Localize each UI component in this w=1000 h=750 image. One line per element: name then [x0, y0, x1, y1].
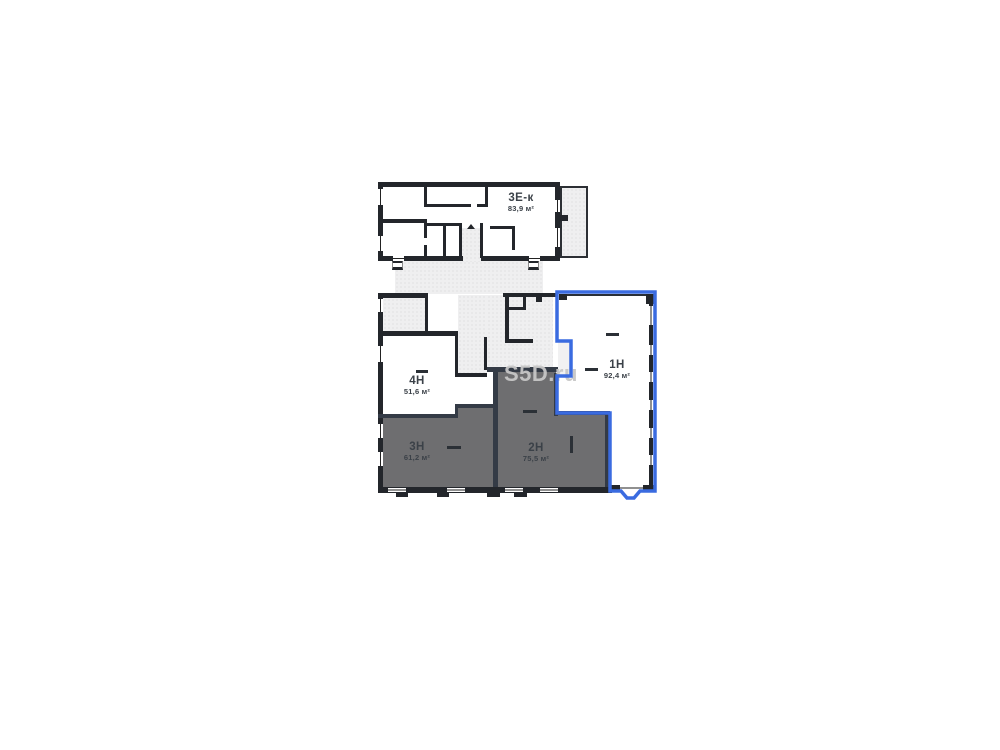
room-label-2n[interactable]: 2Н 75,5 м² — [523, 442, 549, 463]
room3n-step-wall — [455, 404, 497, 408]
block-wall-bottom — [378, 487, 612, 493]
room-area: 75,5 м² — [523, 454, 549, 463]
apt-partition — [382, 219, 427, 223]
room1n-wall-bottom — [610, 485, 620, 491]
hatch-middle-column — [458, 295, 487, 375]
window — [378, 452, 383, 466]
room1n-corner — [559, 294, 567, 300]
corridor-wall — [455, 331, 458, 377]
room-area: 61,2 м² — [404, 453, 430, 462]
apt-wall-right — [555, 182, 560, 261]
floor-plan-canvas: S5D.ru 3Е-к 83,9 м² 4Н 51,6 м² 3Н 61,2 м… — [0, 0, 1000, 750]
room4n-wall-top — [378, 331, 458, 336]
room-area: 51,6 м² — [404, 387, 430, 396]
apt-bathroom-wall — [443, 226, 446, 258]
pilaster — [437, 493, 449, 497]
window — [649, 372, 653, 382]
window — [529, 256, 540, 261]
room-fill-3n[interactable] — [381, 417, 494, 489]
door-mark — [606, 333, 619, 336]
window — [620, 486, 643, 490]
pilaster-box — [528, 260, 539, 270]
window — [393, 256, 404, 261]
window — [649, 400, 653, 410]
hatch-corridor-band — [395, 261, 543, 294]
mid-wall-vertical — [425, 296, 428, 335]
mid-wall-top-left — [378, 293, 428, 298]
hatch-vestibule — [461, 228, 481, 262]
pilaster-box — [392, 260, 403, 270]
window — [388, 488, 406, 492]
window — [649, 455, 653, 465]
stair-shaft-wall — [523, 297, 526, 309]
apt-partition — [485, 185, 488, 206]
room-name: 3Н — [404, 441, 430, 453]
stair-shaft-wall — [505, 293, 509, 343]
door-mark — [585, 368, 598, 371]
balcony-stub — [560, 215, 568, 221]
door-mark — [523, 410, 537, 413]
room-fill-3n-step[interactable] — [458, 407, 494, 417]
stair-shaft-stub — [536, 293, 542, 302]
door-swing-mark — [467, 224, 475, 229]
pilaster — [514, 493, 527, 497]
window — [447, 488, 465, 492]
window — [649, 345, 653, 355]
apt-wall-bottom-right — [481, 256, 560, 261]
window — [540, 488, 558, 492]
stair-wall-top — [503, 293, 556, 297]
window — [378, 236, 383, 251]
room-name: 3Е-к — [508, 192, 534, 204]
watermark: S5D.ru — [504, 361, 578, 387]
stair-shaft-wall — [509, 339, 533, 343]
room-name: 1Н — [604, 359, 630, 371]
door-mark — [570, 436, 573, 453]
window — [378, 189, 383, 205]
room-name: 4Н — [404, 375, 430, 387]
apt-bathroom-wall — [459, 226, 462, 258]
apt-closet-wall — [512, 229, 515, 250]
window — [649, 306, 653, 325]
window — [378, 299, 383, 312]
room-fill-2n-right[interactable] — [556, 415, 607, 489]
pilaster — [487, 493, 500, 497]
room-label-3n[interactable]: 3Н 61,2 м² — [404, 441, 430, 462]
divider-2n-1n — [554, 411, 610, 415]
room3n-step-wall — [455, 404, 458, 418]
divider-2n-1n — [605, 411, 609, 491]
room-label-1n[interactable]: 1Н 92,4 м² — [604, 359, 630, 380]
apt-partition — [424, 245, 427, 258]
room3n-wall-top — [378, 414, 458, 418]
corridor-wall — [455, 373, 487, 377]
window — [555, 228, 560, 247]
window — [649, 428, 653, 438]
apt-wall-top — [378, 182, 560, 187]
window — [505, 488, 523, 492]
balcony-area — [560, 186, 588, 258]
window — [378, 346, 383, 362]
room-name: 2Н — [523, 442, 549, 454]
window — [378, 424, 383, 438]
room-fill-2n[interactable] — [498, 372, 556, 489]
door-mark — [416, 370, 428, 373]
room-label-3ek[interactable]: 3Е-к 83,9 м² — [508, 192, 534, 213]
apt-vestibule-wall — [480, 223, 483, 258]
divider-3n-2n — [493, 367, 498, 487]
apt-partition — [424, 185, 427, 206]
apt-partition — [424, 204, 471, 207]
room-area: 92,4 м² — [604, 371, 630, 380]
room1n-wall-bottom — [643, 485, 654, 491]
window — [555, 200, 560, 212]
pilaster — [396, 493, 408, 497]
door-mark — [447, 446, 461, 449]
room-area: 83,9 м² — [508, 204, 534, 213]
apt-wall-bottom-left — [378, 256, 463, 261]
hatch-left-pocket — [383, 298, 425, 333]
room1n-wall-top-line — [559, 294, 654, 296]
corridor-wall — [484, 337, 487, 370]
room-label-4n[interactable]: 4Н 51,6 м² — [404, 375, 430, 396]
